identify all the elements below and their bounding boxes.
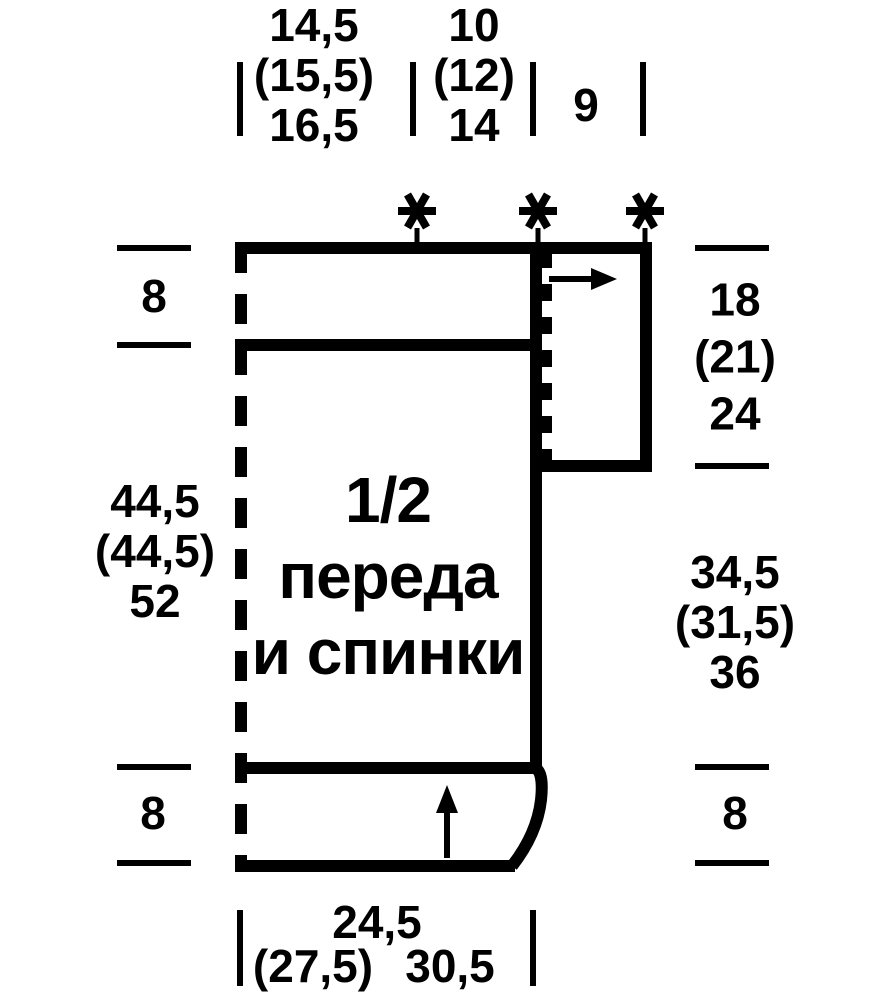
asterisk-icon	[626, 195, 664, 246]
bottom-width-label-alt1: (27,5)	[253, 941, 373, 991]
measurement-line: (27,5)	[253, 941, 373, 991]
top-width-label-1: 14,5 (15,5) 16,5	[254, 0, 374, 150]
measurement-line: 52	[95, 576, 215, 626]
piece-title-line: и спинки	[252, 614, 525, 690]
measurement-line: 44,5	[95, 476, 215, 526]
measurement-line: (21)	[694, 329, 776, 386]
measurement-line: 18	[694, 272, 776, 329]
piece-title-line: переда	[252, 538, 525, 614]
measurement-line: 16,5	[254, 100, 374, 150]
asterisk-icon	[398, 195, 436, 246]
right-height-label-3: 8	[722, 788, 748, 838]
left-height-label-1: 8	[141, 271, 167, 321]
top-width-label-3: 9	[573, 80, 599, 130]
measurement-line: 30,5	[405, 941, 495, 991]
knitting-pattern-schematic: 14,5 (15,5) 16,5 10 (12) 14 9 8 44,5 (44…	[0, 0, 884, 1000]
piece-title-line: 1/2	[252, 462, 525, 538]
measurement-line: (12)	[433, 50, 515, 100]
bottom-width-label-alt2: 30,5	[405, 941, 495, 991]
right-height-label-2: 34,5 (31,5) 36	[675, 547, 795, 697]
measurement-line: 8	[722, 788, 748, 838]
measurement-line: 24	[694, 386, 776, 443]
measurement-line: 34,5	[675, 547, 795, 597]
top-width-label-2: 10 (12) 14	[433, 0, 515, 150]
piece-title: 1/2 переда и спинки	[252, 462, 525, 690]
measurement-line: 14,5	[254, 0, 374, 50]
measurement-line: 9	[573, 80, 599, 130]
left-height-label-3: 8	[140, 788, 166, 838]
measurement-line: (15,5)	[254, 50, 374, 100]
measurement-line: 14	[433, 100, 515, 150]
measurement-line: 10	[433, 0, 515, 50]
arrow-right-icon	[549, 268, 617, 290]
measurement-line: (44,5)	[95, 526, 215, 576]
measurement-line: (31,5)	[675, 597, 795, 647]
hem-side-curve	[512, 768, 542, 866]
measurement-line: 36	[675, 647, 795, 697]
asterisk-icon	[519, 195, 557, 246]
measurement-line: 8	[141, 271, 167, 321]
left-height-label-2: 44,5 (44,5) 52	[95, 476, 215, 626]
measurement-line: 8	[140, 788, 166, 838]
arrow-up-icon	[436, 785, 458, 858]
right-height-label-1: 18 (21) 24	[694, 272, 776, 443]
